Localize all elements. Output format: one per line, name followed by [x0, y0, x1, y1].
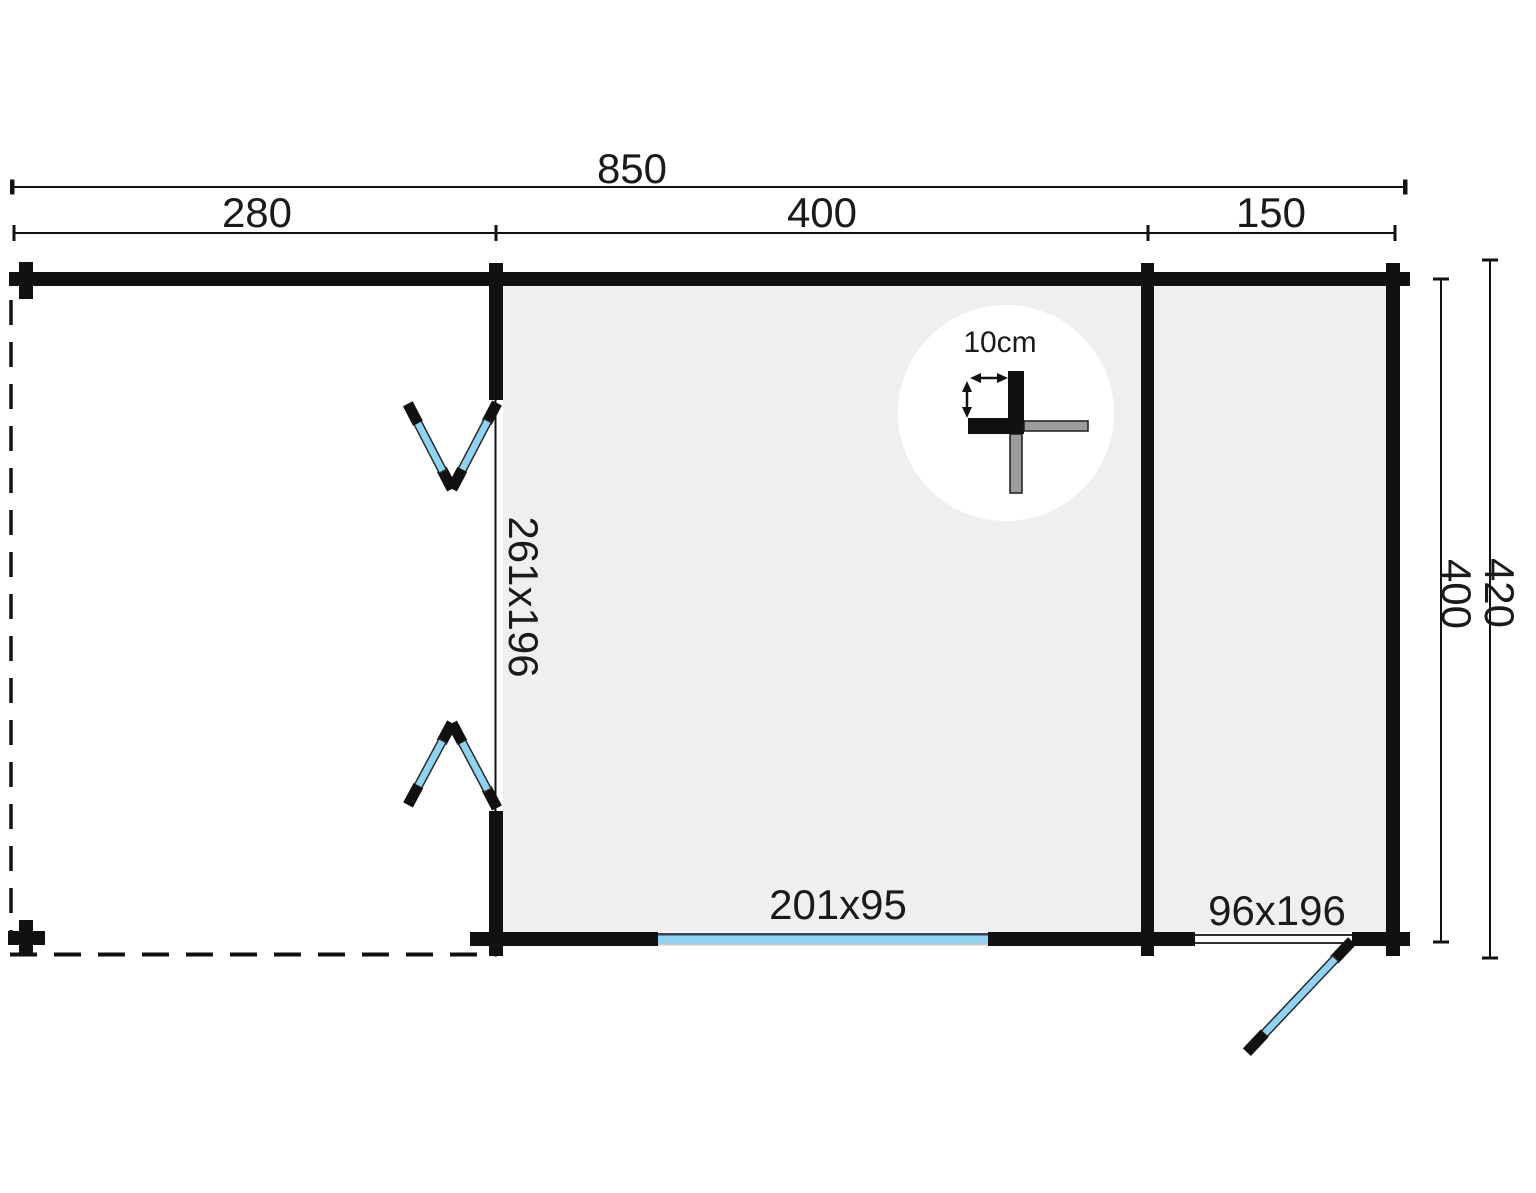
door-glass: [458, 739, 491, 792]
window-size-label: 201x95: [769, 881, 907, 928]
dim-terrace-width-label: 280: [222, 189, 292, 236]
dim-tick: [13, 225, 16, 241]
dim-tick: [10, 180, 15, 195]
floor-plan-canvas: 10cm 850 280 400 150 400 420 261x196 201…: [0, 0, 1536, 1193]
dim-tick: [1482, 259, 1498, 262]
door-cap: [403, 401, 423, 426]
door-cap: [403, 783, 423, 808]
detail-wall-horizontal: [968, 418, 1024, 434]
window-sill: [658, 944, 988, 946]
window-frame-top: [658, 933, 988, 936]
dim-tick: [1147, 225, 1150, 241]
dim-tick: [1403, 180, 1408, 195]
window: [658, 932, 988, 946]
detail-beam-horizontal: [1024, 421, 1088, 431]
floor-plan: 10cm 850 280 400 150 400 420 261x196 201…: [0, 0, 1536, 1193]
wall-thickness-detail: 10cm: [898, 305, 1114, 521]
annex-door-leaf: [1243, 937, 1356, 1056]
dim-tick: [1394, 225, 1397, 241]
dim-tick: [1433, 278, 1449, 281]
detail-beam-vertical: [1010, 434, 1022, 493]
dim-outer-depth-label: 420: [1476, 558, 1523, 628]
dim-tick: [1482, 957, 1498, 960]
annex-door-opening: [1195, 932, 1352, 946]
door-glass: [414, 739, 446, 789]
door-glass: [1260, 956, 1338, 1038]
annex-door-size-label: 96x196: [1208, 887, 1346, 934]
double-door-leaf-upper-b: [403, 401, 457, 491]
top-wall: [9, 272, 1410, 286]
dim-inner-depth-label: 400: [1433, 559, 1480, 629]
door-cap: [1243, 1029, 1269, 1055]
divider-wall: [1141, 263, 1154, 956]
right-wall: [1386, 263, 1400, 956]
dim-annex-width-label: 150: [1236, 189, 1306, 236]
door-glass: [458, 419, 491, 473]
door-glass: [413, 420, 446, 473]
wall-thickness-label: 10cm: [963, 326, 1036, 359]
dim-main-room-width-label: 400: [787, 189, 857, 236]
window-glass: [658, 936, 988, 944]
dim-total-width-label: 850: [597, 145, 667, 192]
terrace-post-top-left: [19, 262, 33, 299]
double-door-size-label: 261x196: [500, 516, 547, 677]
terrace-post-bottom-left-horizontal: [8, 931, 45, 945]
dimension-ticks-horizontal: [10, 180, 1408, 242]
double-door-leaf-lower-b: [403, 720, 457, 807]
annex-room-floor: [1147, 279, 1393, 939]
dim-tick: [495, 225, 498, 241]
dim-tick: [1433, 941, 1449, 944]
left-wall-upper: [489, 263, 503, 400]
